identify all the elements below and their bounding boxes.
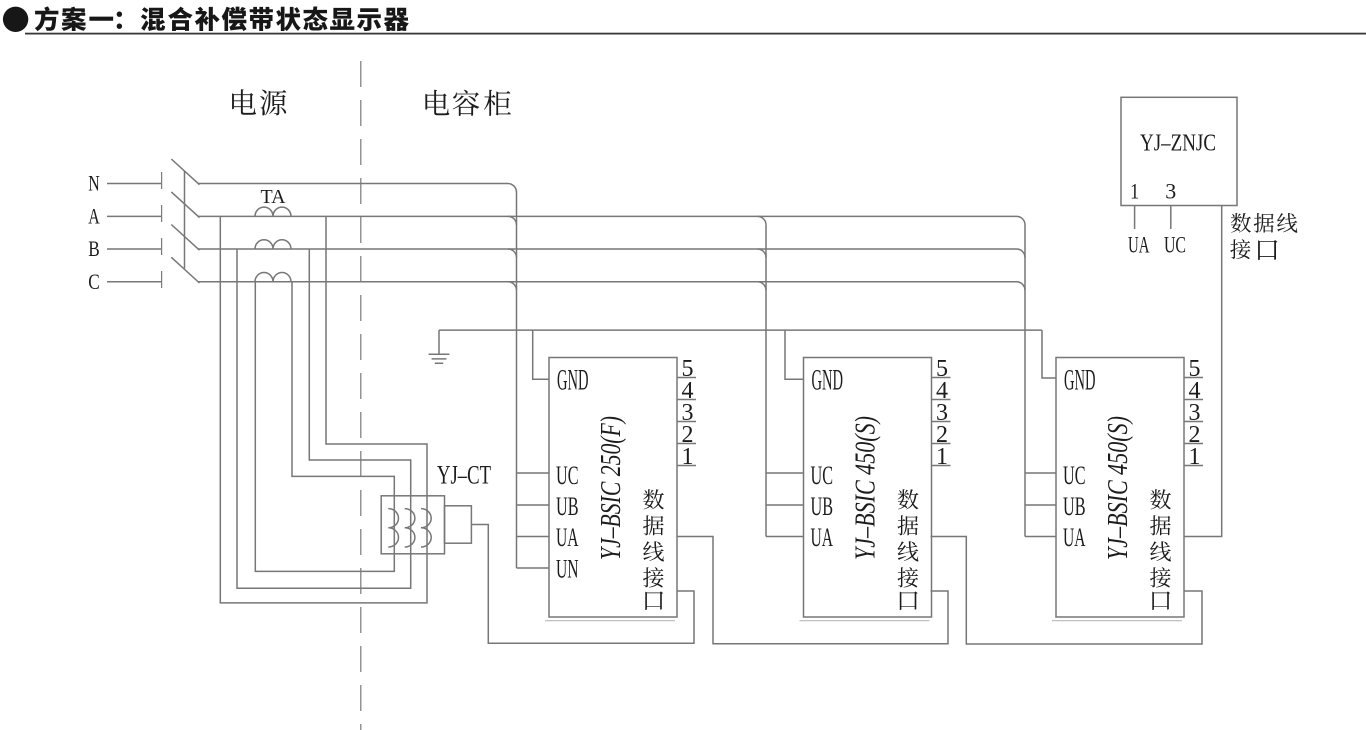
svg-text:UA: UA [1128, 233, 1150, 258]
svg-text:UB: UB [1063, 492, 1086, 521]
svg-text:B: B [88, 236, 100, 261]
svg-text:YJ–BSIC 450(S): YJ–BSIC 450(S) [851, 416, 882, 560]
svg-text:UC: UC [811, 461, 834, 490]
svg-text:UC: UC [556, 461, 579, 490]
svg-text:1: 1 [1189, 444, 1201, 470]
svg-text:1: 1 [1130, 179, 1139, 204]
svg-text:GND: GND [812, 363, 844, 396]
svg-text:3: 3 [1165, 179, 1176, 204]
svg-text:YJ–CT: YJ–CT [437, 461, 491, 490]
svg-text:YJ–BSIC 450(S): YJ–BSIC 450(S) [1103, 416, 1134, 560]
svg-text:UA: UA [811, 523, 834, 552]
svg-text:UB: UB [556, 492, 579, 521]
svg-text:GND: GND [1064, 363, 1096, 396]
svg-text:GND: GND [557, 363, 589, 396]
svg-text:UA: UA [556, 523, 579, 552]
svg-text:YJ–ZNJC: YJ–ZNJC [1140, 130, 1216, 157]
svg-text:A: A [88, 204, 100, 229]
svg-text:YJ–BSIC 250(F): YJ–BSIC 250(F) [596, 416, 627, 560]
svg-text:N: N [88, 171, 100, 196]
svg-text:1: 1 [682, 444, 694, 470]
svg-text:TA: TA [261, 186, 287, 208]
svg-text:1: 1 [936, 444, 948, 470]
svg-text:UA: UA [1063, 523, 1086, 552]
svg-text:C: C [88, 269, 100, 294]
svg-text:UN: UN [556, 555, 579, 584]
svg-text:UC: UC [1063, 461, 1086, 490]
svg-text:UC: UC [1164, 233, 1186, 258]
svg-text:UB: UB [811, 492, 834, 521]
